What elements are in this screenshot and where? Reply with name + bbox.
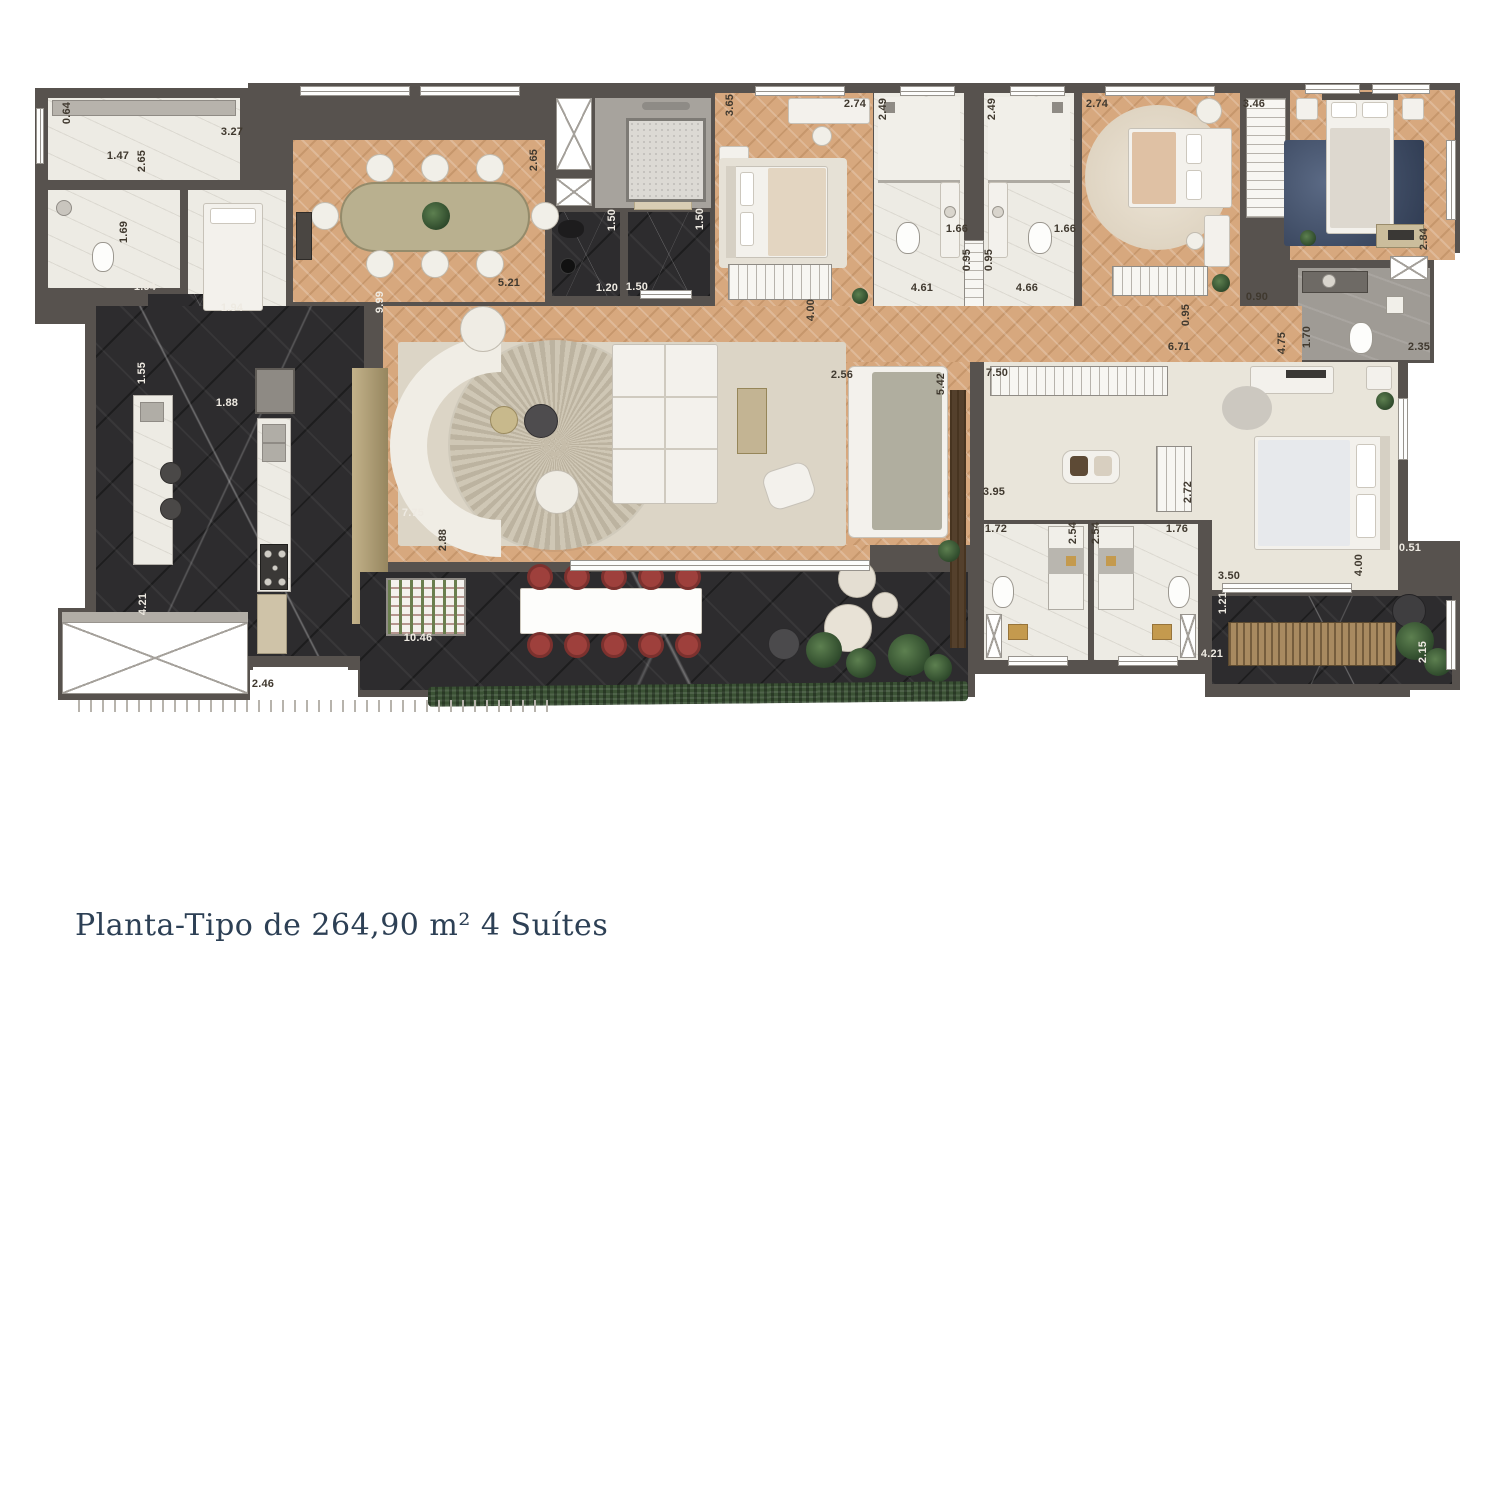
dimension-label: 2.74 bbox=[844, 98, 866, 110]
dimension-label: 3.50 bbox=[1218, 570, 1240, 582]
dimension-label: 2.84 bbox=[1418, 228, 1430, 250]
dimension-label: 5.42 bbox=[935, 373, 947, 395]
dimension-label: 4.21 bbox=[1201, 648, 1223, 660]
dimension-label: 2.15 bbox=[1417, 641, 1429, 663]
dimension-label: 0.95 bbox=[1180, 304, 1192, 326]
dimension-label: 1.21 bbox=[1217, 592, 1229, 614]
dimension-label: 0.64 bbox=[61, 102, 73, 124]
dimension-label: 1.50 bbox=[606, 209, 618, 231]
dimension-label: 1.20 bbox=[596, 282, 618, 294]
dimension-label: 2.49 bbox=[986, 98, 998, 120]
dimension-label: 1.76 bbox=[1166, 523, 1188, 535]
dimension-label: 7.50 bbox=[986, 367, 1008, 379]
dimension-label: 1.66 bbox=[946, 223, 968, 235]
dimension-label: 0.51 bbox=[1399, 542, 1421, 554]
dimension-label: 1.72 bbox=[985, 523, 1007, 535]
dimension-label: 3.65 bbox=[724, 94, 736, 116]
dimension-label: 2.74 bbox=[1086, 98, 1108, 110]
dimension-label: 0.95 bbox=[983, 249, 995, 271]
dimension-label: 2.49 bbox=[877, 98, 889, 120]
dimension-label: 3.95 bbox=[983, 486, 1005, 498]
dimension-label: 4.61 bbox=[911, 282, 933, 294]
dimension-label: 2.54 bbox=[1067, 522, 1079, 544]
dimension-label: 1.55 bbox=[136, 362, 148, 384]
dimension-label: 1.94 bbox=[221, 302, 243, 314]
dimension-label: 2.46 bbox=[252, 678, 274, 690]
dimension-label: 2.65 bbox=[136, 150, 148, 172]
dimension-label: 2.72 bbox=[1182, 481, 1194, 503]
plan-caption: Planta-Tipo de 264,90 m² 4 Suítes bbox=[75, 908, 608, 943]
dimension-label: 0.90 bbox=[1246, 291, 1268, 303]
dimension-label: 4.66 bbox=[1016, 282, 1038, 294]
dimension-label: 1.88 bbox=[216, 397, 238, 409]
dimension-label: 4.75 bbox=[1276, 332, 1288, 354]
dimension-label: 2.88 bbox=[437, 529, 449, 551]
dimension-label: 3.46 bbox=[1243, 98, 1265, 110]
dimension-label: 2.56 bbox=[831, 369, 853, 381]
dimension-label: 1.69 bbox=[118, 221, 130, 243]
dimension-label: 1.66 bbox=[1054, 223, 1076, 235]
floor-plan-canvas: 0.643.271.472.651.691.941.942.655.219.99… bbox=[0, 0, 1500, 1500]
dimension-label: 5.21 bbox=[498, 277, 520, 289]
dimension-label: 4.00 bbox=[1353, 554, 1365, 576]
dimension-label: 4.21 bbox=[137, 593, 149, 615]
dimension-labels-layer: 0.643.271.472.651.691.941.942.655.219.99… bbox=[0, 0, 1500, 1500]
dimension-label: 1.94 bbox=[134, 281, 156, 293]
dimension-label: 6.71 bbox=[1168, 341, 1190, 353]
dimension-label: 7.75 bbox=[402, 507, 424, 519]
dimension-label: 2.54 bbox=[1090, 522, 1102, 544]
dimension-label: 3.27 bbox=[221, 126, 243, 138]
dimension-label: 4.00 bbox=[805, 299, 817, 321]
dimension-label: 9.99 bbox=[374, 291, 386, 313]
dimension-label: 10.46 bbox=[404, 632, 433, 644]
dimension-label: 2.35 bbox=[1408, 341, 1430, 353]
dimension-label: 0.95 bbox=[961, 249, 973, 271]
dimension-label: 1.50 bbox=[626, 281, 648, 293]
dimension-label: 1.70 bbox=[1301, 326, 1313, 348]
dimension-label: 2.65 bbox=[528, 149, 540, 171]
dimension-label: 1.47 bbox=[107, 150, 129, 162]
dimension-label: 1.50 bbox=[694, 208, 706, 230]
